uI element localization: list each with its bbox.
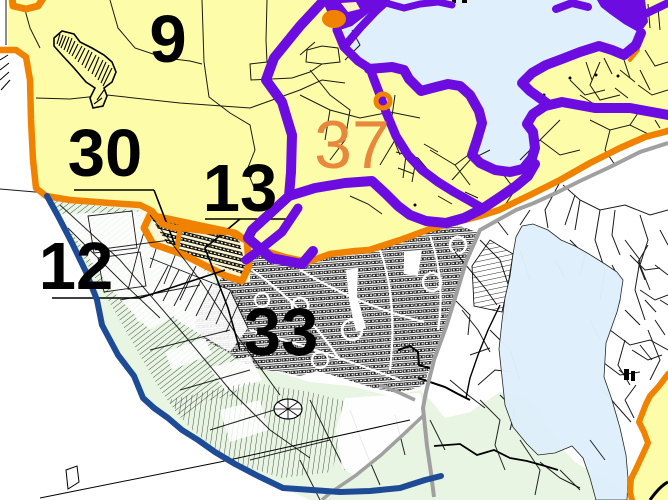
svg-text:30: 30 bbox=[68, 116, 143, 191]
svg-text:33: 33 bbox=[244, 295, 319, 370]
svg-text:9: 9 bbox=[149, 2, 186, 77]
svg-text:37: 37 bbox=[314, 107, 390, 183]
svg-text:13: 13 bbox=[203, 151, 278, 226]
svg-text:12: 12 bbox=[39, 229, 114, 304]
